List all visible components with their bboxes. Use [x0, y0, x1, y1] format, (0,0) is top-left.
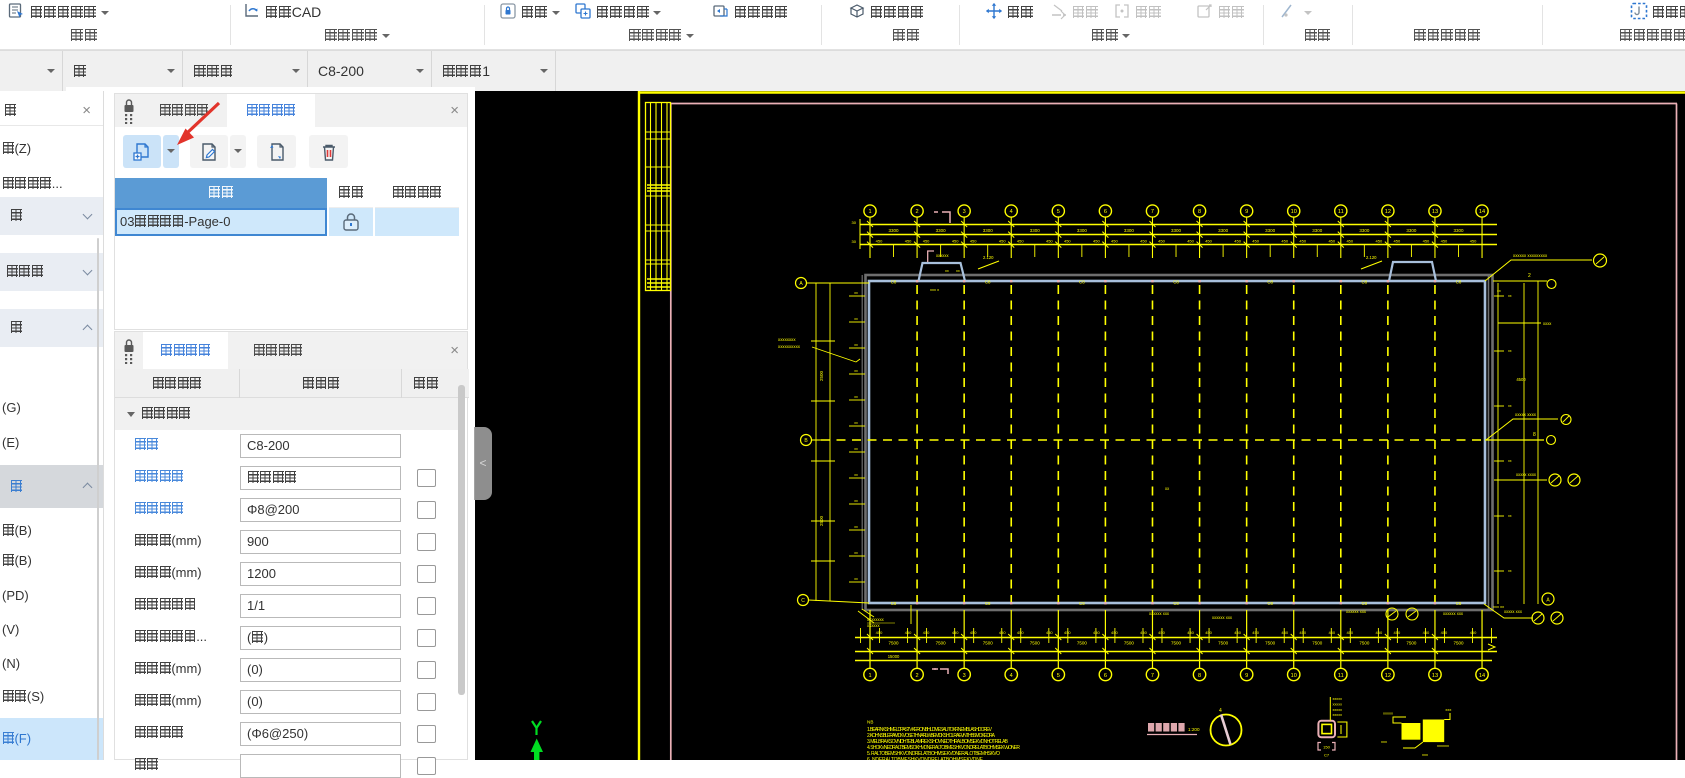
svg-text:450: 450 — [1017, 239, 1024, 244]
svg-text:11: 11 — [1338, 673, 1344, 679]
svg-text:xx: xx — [854, 291, 858, 295]
svg-text:450: 450 — [1394, 239, 1401, 244]
svg-text:11: 11 — [1338, 209, 1344, 215]
svg-text:9: 9 — [1245, 209, 1248, 215]
svg-text:7500: 7500 — [936, 641, 947, 646]
svg-text:150: 150 — [1323, 745, 1330, 750]
svg-text:xxxxxx xxx: xxxxxx xxx — [1346, 609, 1367, 614]
svg-text:30: 30 — [852, 239, 857, 244]
svg-text:xx: xx — [945, 269, 949, 273]
svg-text:450: 450 — [952, 239, 959, 244]
svg-text:C8: C8 — [985, 601, 991, 606]
svg-text:3300: 3300 — [1124, 228, 1135, 233]
svg-text:450: 450 — [970, 239, 977, 244]
svg-text:5: 5 — [1057, 673, 1060, 679]
svg-text:xxxxxxxx: xxxxxxxx — [778, 337, 796, 342]
svg-text:C8: C8 — [1362, 601, 1368, 606]
svg-text:A: A — [799, 281, 803, 287]
svg-text:450: 450 — [1064, 630, 1071, 635]
svg-text:xx: xx — [1508, 349, 1512, 353]
svg-text:xx: xx — [854, 473, 858, 477]
svg-text:C8: C8 — [891, 279, 897, 284]
svg-text:450: 450 — [1187, 630, 1194, 635]
svg-text:xxxxxx: xxxxxx — [1437, 743, 1449, 748]
svg-text:C8: C8 — [1079, 279, 1085, 284]
svg-text:450: 450 — [876, 630, 883, 635]
svg-text:450: 450 — [905, 630, 912, 635]
svg-text:xxxxxx: xxxxxx — [936, 253, 949, 258]
svg-text:5: 5 — [1057, 209, 1060, 215]
svg-text:1: 1 — [868, 209, 871, 215]
svg-text:450: 450 — [1470, 239, 1477, 244]
svg-text:450: 450 — [1205, 630, 1212, 635]
svg-text:450: 450 — [1093, 239, 1100, 244]
svg-text:xx: xx — [1508, 459, 1512, 463]
svg-text:14: 14 — [1479, 673, 1485, 679]
svg-text:450: 450 — [1158, 630, 1165, 635]
svg-text:C8: C8 — [1173, 601, 1179, 606]
svg-text:450: 450 — [1423, 239, 1430, 244]
svg-text:450: 450 — [1046, 239, 1053, 244]
svg-text:3300: 3300 — [1406, 228, 1417, 233]
svg-text:8: 8 — [1533, 432, 1536, 438]
svg-text:1:200: 1:200 — [1188, 727, 1200, 732]
svg-text:xx: xx — [854, 551, 858, 555]
svg-text:450: 450 — [1093, 630, 1100, 635]
svg-text:xxx: xxx — [1422, 752, 1428, 757]
svg-text:7500: 7500 — [1077, 641, 1088, 646]
svg-text:4: 4 — [1219, 708, 1222, 714]
svg-text:xx: xx — [854, 343, 858, 347]
svg-text:xxxxx: xxxxx — [1333, 708, 1343, 712]
svg-text:450: 450 — [1017, 630, 1024, 635]
svg-text:xxxxx xxxx: xxxxx xxxx — [1515, 412, 1537, 417]
svg-text:12: 12 — [1385, 673, 1391, 679]
svg-text:xxx: xxx — [1445, 707, 1451, 712]
svg-text:10: 10 — [1291, 673, 1297, 679]
svg-text:xxxx: xxxx — [1543, 321, 1552, 326]
svg-text:xxxxxx xxx: xxxxxx xxx — [1443, 611, 1464, 616]
svg-text:450: 450 — [952, 630, 959, 635]
svg-text:xxxxx: xxxxx — [1333, 697, 1343, 701]
svg-text:450: 450 — [1111, 630, 1118, 635]
svg-text:B: B — [804, 438, 808, 444]
svg-text:450: 450 — [1376, 239, 1383, 244]
svg-text:xx: xx — [854, 317, 858, 321]
svg-text:450: 450 — [1299, 630, 1306, 635]
svg-text:450: 450 — [1441, 630, 1448, 635]
svg-text:xxx x: xxx x — [930, 287, 939, 292]
svg-text:3300: 3300 — [1359, 228, 1370, 233]
svg-text:8: 8 — [1198, 209, 1201, 215]
svg-text:xxxxxx: xxxxxx — [867, 623, 880, 628]
svg-text:C8: C8 — [1173, 279, 1179, 284]
svg-text:12: 12 — [1385, 209, 1391, 215]
svg-text:C8: C8 — [1079, 601, 1085, 606]
svg-text:xxxxx xxx: xxxxx xxx — [1504, 609, 1523, 614]
svg-text:3300: 3300 — [1077, 228, 1088, 233]
svg-text:7500: 7500 — [1453, 641, 1464, 646]
svg-text:xx: xx — [854, 577, 858, 581]
svg-text:450: 450 — [1346, 239, 1353, 244]
svg-text:xx: xx — [1508, 514, 1512, 518]
svg-text:7500: 7500 — [1359, 641, 1370, 646]
svg-text:450: 450 — [1470, 630, 1477, 635]
svg-text:3300: 3300 — [889, 228, 900, 233]
svg-text:xx: xx — [854, 369, 858, 373]
svg-text:9: 9 — [1245, 673, 1248, 679]
svg-text:450: 450 — [1234, 630, 1241, 635]
svg-text:xxxxx xxxx: xxxxx xxxx — [1516, 472, 1537, 477]
svg-text:C8: C8 — [1362, 279, 1368, 284]
svg-text:450: 450 — [1111, 239, 1118, 244]
svg-text:xxxxxx xxx: xxxxxx xxx — [1149, 611, 1170, 616]
svg-text:3300: 3300 — [1312, 228, 1323, 233]
svg-text:2: 2 — [916, 209, 919, 215]
svg-text:450: 450 — [1328, 630, 1335, 635]
svg-text:450: 450 — [970, 630, 977, 635]
svg-text:7500: 7500 — [1265, 641, 1276, 646]
svg-text:3300: 3300 — [1218, 228, 1229, 233]
svg-text:7500: 7500 — [1171, 641, 1182, 646]
svg-text:450: 450 — [1252, 630, 1259, 635]
svg-text:450: 450 — [1205, 239, 1212, 244]
svg-text:xx: xx — [854, 499, 858, 503]
svg-text:xx: xx — [956, 269, 960, 273]
svg-text:xxxxxx xxxxxxxxx: xxxxxx xxxxxxxxx — [1513, 253, 1548, 258]
svg-text:1: 1 — [868, 673, 871, 679]
svg-text:xx: xx — [854, 421, 858, 425]
svg-text:450: 450 — [1281, 630, 1288, 635]
svg-text:450: 450 — [905, 239, 912, 244]
svg-text:7: 7 — [1151, 209, 1154, 215]
svg-text:450: 450 — [999, 630, 1006, 635]
svg-text:7500: 7500 — [1218, 641, 1229, 646]
svg-text:xxxxxxxxxx: xxxxxxxxxx — [778, 344, 801, 349]
svg-text:7500: 7500 — [1030, 641, 1041, 646]
svg-text:2500: 2500 — [819, 515, 824, 526]
svg-text:30: 30 — [852, 220, 857, 225]
svg-text:NB: NB — [867, 720, 873, 725]
svg-text:xx: xx — [854, 395, 858, 399]
svg-text:13: 13 — [1432, 209, 1438, 215]
svg-text:xx: xx — [1508, 569, 1512, 573]
svg-text:7500: 7500 — [1312, 641, 1323, 646]
svg-text:14: 14 — [1479, 209, 1485, 215]
svg-text:450: 450 — [1064, 239, 1071, 244]
svg-text:4500: 4500 — [1516, 377, 1526, 382]
svg-text:450: 450 — [1234, 239, 1241, 244]
svg-text:3300: 3300 — [1171, 228, 1182, 233]
svg-text:xx: xx — [854, 447, 858, 451]
svg-text:450: 450 — [923, 630, 930, 635]
svg-text:C8: C8 — [1267, 279, 1273, 284]
svg-text:xxx: xxx — [1381, 739, 1387, 744]
svg-text:450: 450 — [876, 239, 883, 244]
svg-text:3: 3 — [963, 673, 966, 679]
svg-text:450: 450 — [1140, 239, 1147, 244]
svg-text:xxxxx: xxxxx — [1333, 702, 1343, 706]
svg-text:450: 450 — [1046, 630, 1053, 635]
svg-text:450: 450 — [1328, 239, 1335, 244]
svg-text:xxxxxx xxx: xxxxxx xxx — [1212, 615, 1233, 620]
svg-text:7500: 7500 — [889, 641, 900, 646]
svg-text:7: 7 — [1151, 673, 1154, 679]
svg-text:15000: 15000 — [888, 654, 900, 659]
svg-text:450: 450 — [1423, 630, 1430, 635]
svg-text:450: 450 — [1281, 239, 1288, 244]
svg-text:xxx xx: xxx xx — [1493, 604, 1504, 609]
svg-text:C: C — [801, 598, 805, 604]
svg-text:6: 6 — [1104, 673, 1107, 679]
svg-text:C8: C8 — [1456, 601, 1462, 606]
svg-text:xxxxx: xxxxx — [1383, 710, 1393, 715]
svg-text:7500: 7500 — [1406, 641, 1417, 646]
svg-text:450: 450 — [1140, 630, 1147, 635]
svg-text:450: 450 — [1299, 239, 1306, 244]
svg-text:xxxxx: xxxxx — [1333, 713, 1343, 717]
svg-text:7500: 7500 — [983, 641, 994, 646]
svg-text:450: 450 — [1441, 239, 1448, 244]
svg-text:xx: xx — [854, 525, 858, 529]
svg-text:3300: 3300 — [1030, 228, 1041, 233]
svg-text:3300: 3300 — [1265, 228, 1276, 233]
svg-text:A: A — [1546, 598, 1550, 604]
svg-text:C8: C8 — [1267, 601, 1273, 606]
svg-text:4: 4 — [1010, 673, 1013, 679]
svg-text:C8: C8 — [891, 601, 897, 606]
svg-text:450: 450 — [1252, 239, 1259, 244]
svg-text:450: 450 — [923, 239, 930, 244]
svg-text:10: 10 — [1291, 209, 1297, 215]
svg-text:C7: C7 — [1324, 753, 1330, 758]
svg-text:6: 6 — [1104, 209, 1107, 215]
svg-text:2500: 2500 — [819, 370, 824, 381]
svg-text:8: 8 — [1198, 673, 1201, 679]
svg-text:3: 3 — [963, 209, 966, 215]
svg-text:450: 450 — [1394, 630, 1401, 635]
svg-text:3300: 3300 — [936, 228, 947, 233]
svg-text:3300: 3300 — [983, 228, 994, 233]
svg-text:450: 450 — [1346, 630, 1353, 635]
svg-text:xx: xx — [1508, 404, 1512, 408]
svg-text:4: 4 — [1010, 209, 1013, 215]
svg-text:450: 450 — [999, 239, 1006, 244]
svg-text:3300: 3300 — [1453, 228, 1464, 233]
svg-text:2.120: 2.120 — [1366, 255, 1377, 260]
svg-text:2: 2 — [1528, 273, 1531, 279]
svg-text:450: 450 — [1187, 239, 1194, 244]
svg-text:C8: C8 — [985, 279, 991, 284]
svg-text:xx: xx — [1165, 486, 1170, 491]
svg-text:2: 2 — [916, 673, 919, 679]
svg-text:450: 450 — [1376, 630, 1383, 635]
svg-text:C8: C8 — [1456, 279, 1462, 284]
svg-text:xx: xx — [1508, 294, 1512, 298]
svg-text:450: 450 — [1158, 239, 1165, 244]
svg-text:7500: 7500 — [1124, 641, 1135, 646]
svg-text:13: 13 — [1432, 673, 1438, 679]
svg-text:2.120: 2.120 — [983, 255, 994, 260]
